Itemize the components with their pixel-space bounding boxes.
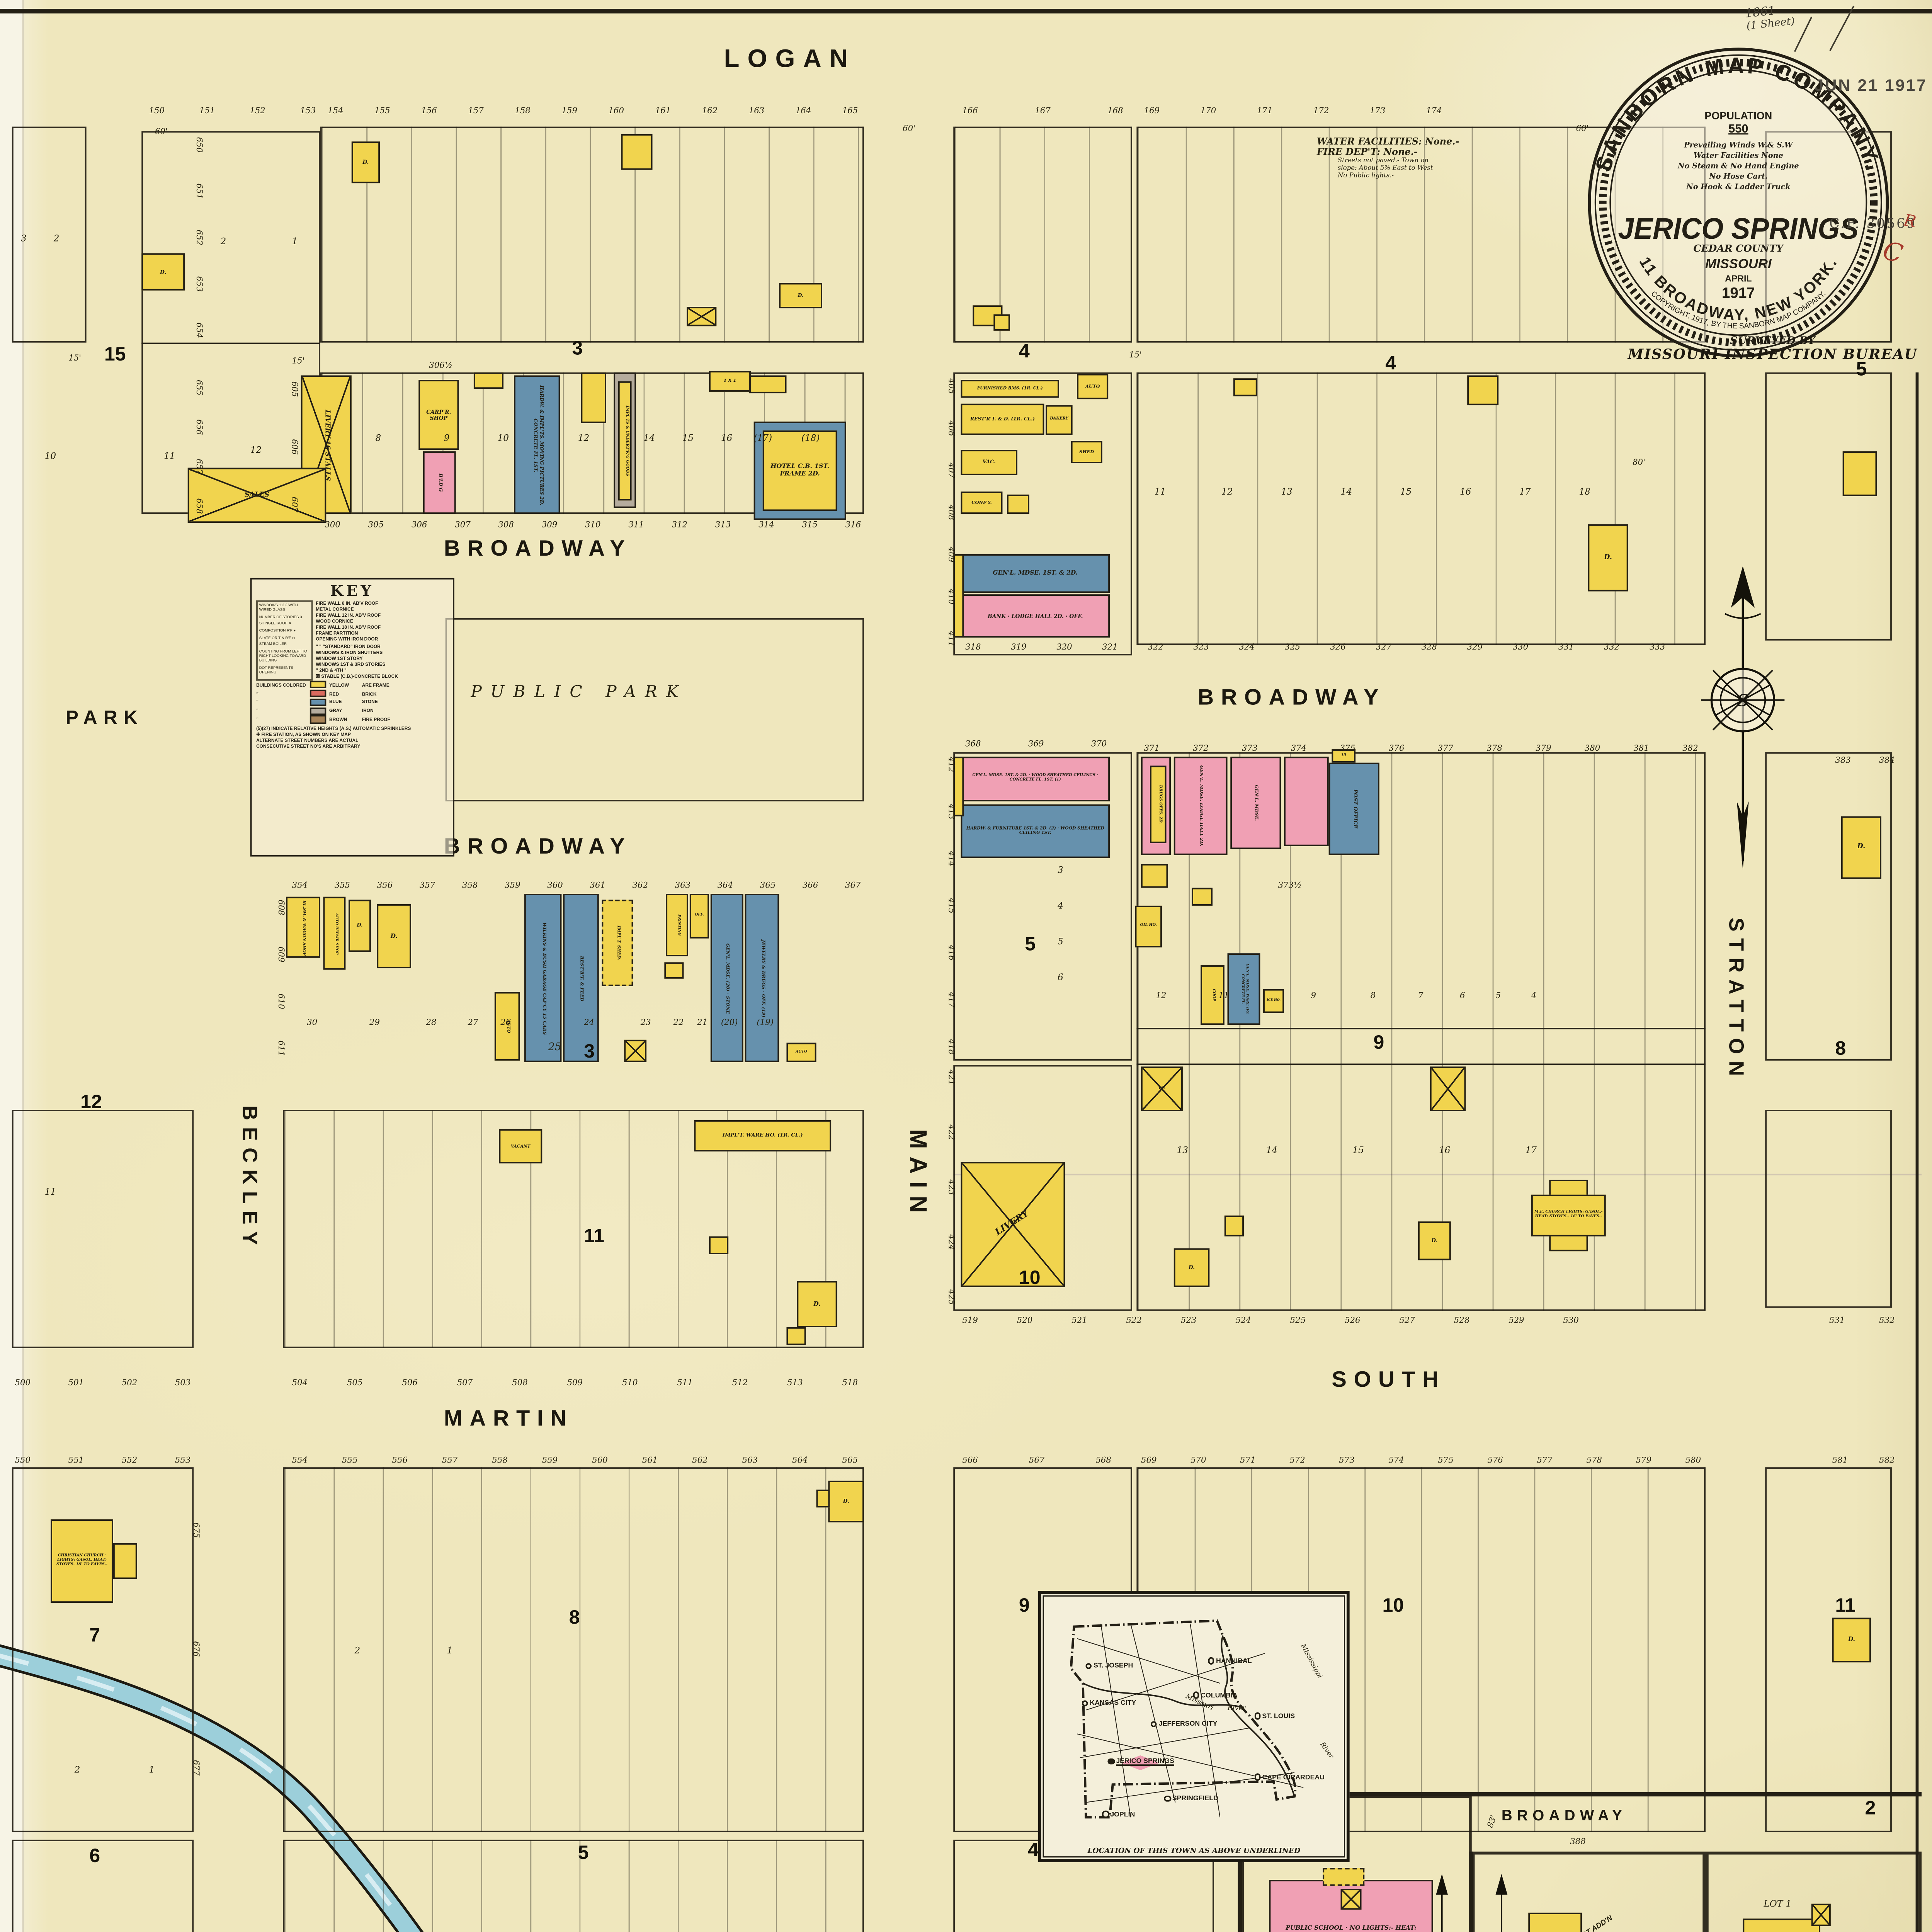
seal-population: 550 [1728,122,1748,135]
block-number: 7 [89,1624,100,1646]
map-note: 60' [155,128,168,137]
building [1233,378,1257,396]
lot-number: 368 [965,740,981,749]
building: D. [141,253,185,290]
water-line: WATER FACILITIES: None.- [1317,137,1526,148]
map-note: 9 [1311,992,1316,1001]
building-label: D. [1420,1238,1449,1244]
building: GEN'L. MDSE. 1ST. & 2D. · WOOD SHEATHED … [961,757,1110,801]
key-color-row: ”BLUESTONE [256,698,448,706]
map-note: 16 [721,435,732,445]
building [664,962,684,978]
lot-number: 566 [962,1457,978,1466]
lot-number: 524 [1235,1317,1251,1326]
seal-year: 1917 [1722,285,1755,301]
lot-number-strip: 405406407408409410411 [946,378,955,646]
key-symbol-note: STEAM BOILER [259,642,310,647]
building-label: D. [1843,844,1880,852]
building: GEN'L. MDSE. [1230,757,1281,849]
inset-city: CAPE GIRARDEAU [1254,1773,1325,1781]
lot-number: 408 [946,505,955,520]
map-note: 6 [1460,992,1465,1001]
lot-number: 572 [1289,1457,1305,1466]
building-label: OFF. [691,914,707,918]
building-label: D. [798,1301,835,1308]
lot-number: 329 [1467,643,1483,652]
block-outline [283,1467,864,1832]
seal-hook: No Hook & Ladder Truck [1686,182,1790,191]
building [993,314,1010,330]
svg-text:S: S [1737,690,1749,710]
map-note: 2 [221,238,226,248]
building [953,554,964,638]
map-note: 8 [375,435,381,445]
lot-number: 323 [1193,643,1209,652]
lot-number: 531 [1829,1317,1845,1326]
lot-number-strip: 519520521522523524525526527528529530 [962,1317,1579,1326]
key-footer-line: (5)(27) INDICATE RELATIVE HEIGHTS (A.S.)… [256,725,448,731]
lot-number-strip: 383384 [1835,757,1895,765]
lot-number: 558 [492,1457,507,1466]
building: GEN'L. MDSE. LODGE HALL 2D. [1174,757,1228,855]
key-color-name: BROWN [329,717,362,723]
building [786,1327,806,1345]
building: AUTO REPAIR SHOP [323,897,346,970]
building-label: SHED [1073,449,1101,454]
map-note: (17) [754,435,772,445]
building: PRINTING [666,894,688,956]
lot-number-strip: 550551552553 [15,1457,191,1466]
building-label: ICE HO. [1265,999,1282,1003]
street-line [0,9,1932,13]
key-color-prefix: ” [256,690,307,696]
building-label: GEN'L. MDSE. [1253,758,1258,847]
lot-number: 319 [1011,643,1026,652]
building: AUTO [1077,374,1108,400]
lot-number: 413 [946,804,955,819]
key-symbol-note: SLATE OR TIN R'F ⊙ [259,636,310,640]
lot-number: 156 [421,107,437,116]
map-note: 16 [1439,1147,1450,1156]
block-outline [1765,1110,1892,1308]
lot-number: 606 [289,439,298,454]
block-outline [320,127,864,343]
lot-number: 554 [292,1457,308,1466]
building: D. [779,283,822,308]
lot-number: 417 [946,992,955,1007]
lot-number: 170 [1201,107,1216,116]
map-note: 8 [1371,992,1376,1001]
block-number: 2 [1865,1796,1876,1819]
building-label: M.E. CHURCH LIGHTS: GASOL.- HEAT: STOVES… [1533,1211,1604,1220]
lot-number: 360 [547,882,563,891]
building: D. [828,1481,864,1522]
building: D. [1174,1248,1210,1287]
map-note: 14 [1266,1147,1277,1156]
lot-number: 151 [199,107,215,116]
building: SHED [1071,441,1102,463]
lot-number: 605 [289,381,298,397]
lot-number: 361 [590,882,605,891]
lot-number: 173 [1370,107,1385,116]
key-color-prefix: ” [256,717,307,723]
map-note: 22 [673,1019,684,1028]
map-note: 1 [447,1648,453,1657]
building [1341,1889,1362,1910]
lot-number: 520 [1017,1317,1032,1326]
lot-number: 355 [335,882,350,891]
building-label: GEN'L. MDSE. WARE HO. CONCRETE FL. [1240,955,1248,1023]
block-number: 8 [569,1606,580,1628]
building-label: D. [350,923,369,929]
street-label-broadway: BROADWAY [1197,685,1386,711]
lot-number: 359 [505,882,520,891]
building [1141,864,1168,888]
lot-number-strip: 675676677 [190,1522,199,1776]
building: BANK · LODGE HALL 2D. · OFF. [961,594,1110,638]
map-note: 5 [1495,992,1500,1001]
lot-number: 332 [1604,643,1619,652]
lot-number: 425 [946,1289,955,1305]
lot-number: 512 [732,1379,748,1388]
lot-number: 555 [342,1457,357,1466]
key-footer: (5)(27) INDICATE RELATIVE HEIGHTS (A.S.)… [256,725,448,750]
lot-number: 656 [194,419,202,435]
building: DRUGS OFFS. 2D. [1150,765,1166,843]
building [1284,757,1329,846]
lot-number: 525 [1290,1317,1306,1326]
lot-number: 507 [457,1379,473,1388]
lot-number: 371 [1144,745,1160,754]
key-color-material: BRICK [362,690,377,696]
building-label: 1½ [1143,1086,1181,1091]
lot-number: 532 [1879,1317,1895,1326]
lot-number: 564 [792,1457,808,1466]
lot-number: 502 [122,1379,137,1388]
map-note: 23 [641,1019,651,1028]
lot-number: 503 [175,1379,190,1388]
lot-number: 316 [845,521,861,530]
building: 1 X 1 [709,371,751,392]
building: REST'R'T. & D. (1R. CL.) [961,404,1044,435]
building: VACANT [499,1129,542,1163]
lot-number: 356 [377,882,393,891]
seal-city: JERICO SPRINGS [1618,212,1859,245]
map-note: 7 [1418,992,1423,1001]
map-note: 15' [292,357,305,366]
inset-river-label: River [1228,1705,1246,1713]
building: TEL.EXCH. & D. [1528,1913,1582,1932]
lot-number: 364 [718,882,733,891]
lot-number: 550 [15,1457,31,1466]
lot-number: 365 [760,882,776,891]
key-footer-line: CONSECUTIVE STREET NO'S ARE ARBITRARY [256,744,448,750]
building-label: OIL HO. [1136,924,1160,929]
building [1843,451,1877,496]
lot-number: 330 [1513,643,1528,652]
public-park-label: PUBLIC PARK [471,682,687,702]
lot-number: 568 [1095,1457,1111,1466]
building-label: D. [353,159,379,165]
building-label: D. [1589,554,1626,562]
map-note: 15 [1352,1147,1364,1156]
building: HARDW. & FURNITURE 1ST. & 2D. (2) · WOOD… [961,804,1110,858]
lot-number: 325 [1284,643,1300,652]
lot-number: 506 [402,1379,417,1388]
lot-number-strip: 371372373374375376377378379380381382 [1144,745,1698,754]
building: OIL HO. [1135,906,1162,947]
lot-number: 153 [300,107,316,116]
lot-number: 366 [803,882,818,891]
building-label: GEN'L. MDSE. LODGE HALL 2D. [1198,758,1203,854]
lot-number: 157 [468,107,483,116]
surveyor-name: MISSOURI INSPECTION BUREAU [1624,347,1922,363]
key-footer-line: ALTERNATE STREET NUMBERS ARE ACTUAL [256,738,448,744]
map-note: 11 [164,453,175,463]
lot-number: 155 [374,107,390,116]
lot-number: 358 [462,882,478,891]
north-arrow [1436,1874,1448,1932]
lot-number: 509 [567,1379,583,1388]
building-label: BL.SM. & WAGON SHOP [301,898,306,956]
inset-map: LOCATION OF THIS TOWN AS ABOVE UNDERLINE… [1038,1591,1350,1862]
building-label: D. [830,1498,862,1505]
key-symbols: WINDOWS 1.2.3 WITH WIRED GLASSNUMBER OF … [256,600,313,680]
color-swatch [310,707,326,715]
building-label: REST'R'T. & FEED [578,895,583,1061]
block-number: 6 [89,1844,100,1867]
key-line: FIRE WALL 6 IN. AB'V ROOF [316,600,448,607]
lot-number: 573 [1339,1457,1354,1466]
key-line: FIRE WALL 18 IN. AB'V ROOF [316,624,448,631]
lot-number: 655 [194,380,202,395]
inset-city: JERICO SPRINGS [1108,1757,1174,1764]
building-label: VAC. [962,459,1016,465]
lot-number: 381 [1633,745,1649,754]
map-note: 24 [584,1019,594,1028]
building-label: SALES [189,492,325,499]
lot-number: 501 [68,1379,84,1388]
building-label: GEN'L. MDSE. 1ST. & 2D. [962,570,1108,577]
lot-number: 523 [1181,1317,1196,1326]
key-line: WINDOW 1ST STORY [316,655,448,661]
lot-number: 510 [622,1379,638,1388]
lot-number: 373 [1242,745,1257,754]
sheet: LIVERY 16 STALLSCARP'R. SHOPB'LD'GHARDW.… [0,0,1932,1932]
lot-number: 380 [1585,745,1600,754]
key-color-prefix: ” [256,708,307,714]
key-line: METAL CORNICE [316,606,448,612]
key-line: " 2ND & 4TH " [316,667,448,673]
lot-number: 576 [1487,1457,1503,1466]
lot-number: 326 [1330,643,1346,652]
building: LIVERY [961,1162,1065,1287]
lot-number: 650 [194,137,202,153]
block-outline [1765,1467,1892,1832]
lot-number: 174 [1426,107,1442,116]
lot-number: 571 [1240,1457,1255,1466]
street-line [1136,1064,1706,1065]
lot-number: 560 [592,1457,607,1466]
lot-number-strip: 566567568 [962,1457,1111,1466]
street-label-broadway: BROADWAY [1502,1808,1627,1825]
building [709,1236,728,1254]
key-color-row: BUILDINGS COLOREDYELLOWARE FRAME [256,680,448,689]
building: D. [1588,524,1628,591]
lot-number: 406 [946,420,955,436]
building-label: HOTEL C.B. 1ST. FRAME 2D. [764,464,836,478]
lot-number: 167 [1035,107,1050,116]
map-note: 3 [21,235,27,245]
building-label: HARDW. & IMPL'TS. MOVING PICTURES 2D. CO… [532,377,543,512]
lot-number: 608 [276,900,284,915]
inset-city: HANNIBAL [1208,1656,1252,1664]
block-outline [446,618,864,801]
block-number: 9 [1019,1594,1030,1616]
building: CONF'Y. [961,492,1003,514]
lot-number: 322 [1148,643,1163,652]
lot-number-strip: 605606607 [289,381,298,512]
lot-number-strip: 554555556557558559560561562563564565 [292,1457,858,1466]
key-color-prefix: ” [256,699,307,705]
lot-number: 313 [715,521,731,530]
lot-number: 314 [759,521,774,530]
building-label: COOP [1210,967,1214,1023]
seal-state: MISSOURI [1705,257,1772,271]
lot-number: 318 [965,643,981,652]
lot-number: 415 [946,898,955,913]
building [749,375,786,393]
building-label: LIVERY [959,1187,1067,1262]
building-label: 15 [1333,754,1354,758]
building: M.E. CHURCH LIGHTS: GASOL.- HEAT: STOVES… [1531,1195,1606,1236]
map-note: 2 [75,1767,80,1776]
seal-month: APRIL [1725,274,1752,284]
lot-number: 529 [1509,1317,1524,1326]
building: POST OFFICE [1329,763,1379,855]
lot-number: 610 [276,993,284,1009]
building: ICE HO. [1263,989,1284,1013]
lot-number: 530 [1563,1317,1578,1326]
map-note: 17 [1519,488,1531,498]
lot-number: 505 [347,1379,362,1388]
lot-number: 658 [194,498,202,514]
building: VAC. [961,450,1017,475]
lot-number: 518 [842,1379,858,1388]
map-note: 14 [1341,488,1352,498]
seal-county: CEDAR COUNTY [1693,243,1784,254]
lot-number: 328 [1422,643,1437,652]
lot-number: 309 [542,521,557,530]
building [1225,1216,1244,1236]
key-line: ☒ STABLE (C.B.)-CONCRETE BLOCK [316,673,448,679]
inset-city: ST. JOSEPH [1085,1662,1133,1669]
building-label: 1 X 1 [711,379,749,384]
block-outline [283,1840,864,1932]
building: FURNISHED RMS. (1R. CL.) [961,380,1059,398]
lot-number: 412 [946,757,955,772]
water-facilities-note: WATER FACILITIES: None.- FIRE DEP'T: Non… [1317,137,1526,180]
lot-number: 574 [1388,1457,1404,1466]
building-label: D. [781,293,821,298]
map-note: 10 [498,435,509,445]
lot-number-strip: 531532 [1829,1317,1895,1326]
building-label: IMPL'TS & UNDERT'K'G GOODS [622,383,627,499]
lot-number: 300 [325,521,340,530]
map-note: 80' [1633,459,1645,468]
block-number: 10 [1382,1594,1404,1616]
lot-number: 324 [1239,643,1254,652]
map-note: 25 [548,1043,561,1054]
block-number: 11 [1835,1594,1855,1616]
lot-number: 311 [628,521,644,530]
map-note: 15' [1129,352,1142,361]
building [474,372,503,389]
building: JEWELRY & DRUGS · OFF. (19) [745,894,779,1062]
street-line [1469,1852,1473,1932]
lot-number-strip: 650651652653654 [194,137,202,338]
seal-water: Water Facilities None [1694,151,1783,160]
building [581,372,606,423]
key-color-material: ARE FRAME [362,682,389,687]
building-label: WILKINS & BUSH GARAGE CAP'CY 15 CARS [541,895,546,1061]
map-note: 1 [292,238,298,248]
building-label: JEWELRY & DRUGS · OFF. (19) [759,895,764,1061]
building-label: AUTO REPAIR SHOP [332,898,337,968]
lot-number: 354 [292,882,308,891]
building [113,1543,137,1579]
block-number: 4 [1019,340,1030,362]
lot-number: 370 [1091,740,1107,749]
building: 1½ [1141,1066,1183,1111]
building [624,1040,646,1062]
compass-rose: S [1695,563,1791,876]
lot-number: 166 [962,107,978,116]
lot-number-strip: 166167168 [962,107,1123,116]
surveyed-by: SURVEYED BY [1624,334,1922,347]
lot-number: 150 [149,107,165,116]
map-note: 60' [903,125,915,134]
building: IMPL'TS & UNDERT'K'G GOODS [618,381,632,500]
lot-number-strip: 150151152153 [149,107,316,116]
lot-number-strip: 569570571572573574575576577578579580 [1141,1457,1701,1466]
building-label: REST'R'T. & D. (1R. CL.) [962,417,1043,422]
map-note: 21 [697,1019,707,1028]
lot-number: 511 [677,1379,692,1388]
lot-number: 407 [946,463,955,478]
lot-number-strip: 154155156157158159160161162163164165 [328,107,858,116]
block-number: 4 [1385,352,1396,374]
key-color-row: ”REDBRICK [256,689,448,697]
block-number: 9 [1373,1031,1384,1053]
map-note: 12 [578,435,589,445]
key-color-name: GRAY [329,708,362,714]
lot-number: 367 [845,882,861,891]
seal-population-label: POPULATION [1704,110,1772,121]
building [1192,888,1213,906]
inset-city: KANSAS CITY [1082,1699,1136,1706]
lot-number: 405 [946,378,955,394]
building-label: GEN'L. MDSE. (20) · STONE [724,895,730,1061]
map-note: 14 [643,435,655,445]
street-line [141,343,320,344]
lot-number: 312 [672,521,687,530]
lot-number: 654 [194,323,202,338]
map-note: 11 [45,1189,56,1198]
building-label: PRINTING [675,895,679,955]
building: BAPTIST CHURCH · LIGHTS: GASOL: HEAT STO… [1743,1918,1820,1932]
key-legend: KEY WINDOWS 1.2.3 WITH WIRED GLASSNUMBER… [250,578,454,857]
